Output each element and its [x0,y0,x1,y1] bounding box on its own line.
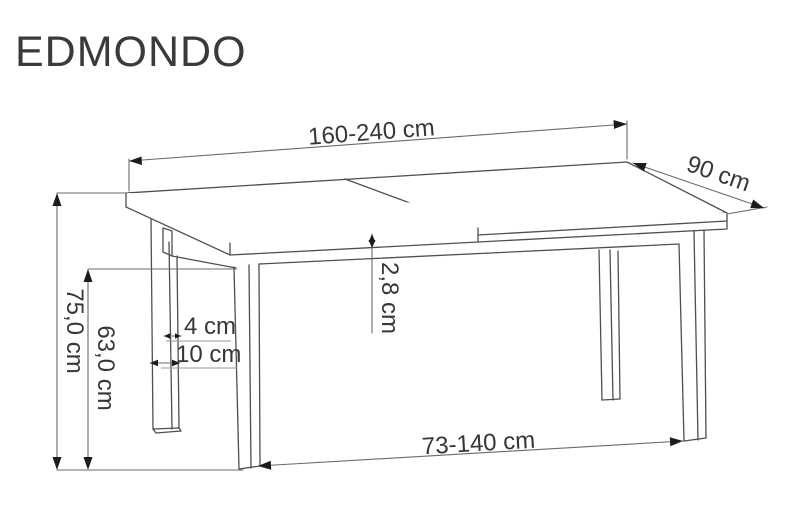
arrowhead-icon [129,157,142,166]
page-title: EDMONDO [15,28,247,76]
leg-line [618,251,620,399]
apron-left-end-cap [163,228,172,256]
leg-front-right [679,230,706,441]
dim-height-label: 75,0 cm [61,288,88,373]
leg-line [151,219,153,429]
extension-line [727,207,767,214]
leg-foot [602,399,620,400]
dim-leg-width-label: 4 cm [184,313,236,340]
leg-line [704,230,706,438]
leg-foot [684,438,706,441]
arrowhead-icon [53,193,62,206]
dimension-leg-depth: 10 cm [150,341,241,368]
dim-length-label: 160-240 cm [307,114,435,150]
diagram-canvas: EDMONDO [0,0,800,527]
apron-left-bottom-edge [172,256,236,268]
arrowhead-icon [164,333,170,339]
leg-line [599,250,602,400]
dim-top-thickness-label: 2,8 cm [376,262,403,334]
dim-leg-span-label: 73-140 cm [421,427,536,461]
arrowhead-icon [750,200,764,209]
leg-line [610,250,613,400]
arrowhead-icon [84,269,93,282]
arrowhead-icon [670,437,683,446]
leg-line [259,264,260,466]
dim-leg-depth-label: 10 cm [176,341,241,368]
leg-line [249,265,251,468]
leg-foot [153,428,181,433]
leg-line [694,231,698,440]
dimension-top-thickness: 2,8 cm [369,234,403,334]
leg-back-right [599,250,620,400]
dim-underframe-height-label: 63,0 cm [92,325,119,410]
arrowhead-icon [53,457,62,470]
dim-depth-label: 90 cm [683,151,754,198]
dimension-leg-span: 73-140 cm [258,427,683,470]
arrowhead-icon [614,120,628,129]
dimension-leg-width: 4 cm [164,313,236,341]
leg-line [679,244,684,441]
leg-foot [239,466,260,469]
arrowhead-icon [150,360,158,367]
dimension-underframe-height: 63,0 cm [84,269,237,470]
tabletop [126,162,727,255]
table-drawing-svg: EDMONDO [0,0,800,527]
arrowhead-icon [84,457,93,470]
